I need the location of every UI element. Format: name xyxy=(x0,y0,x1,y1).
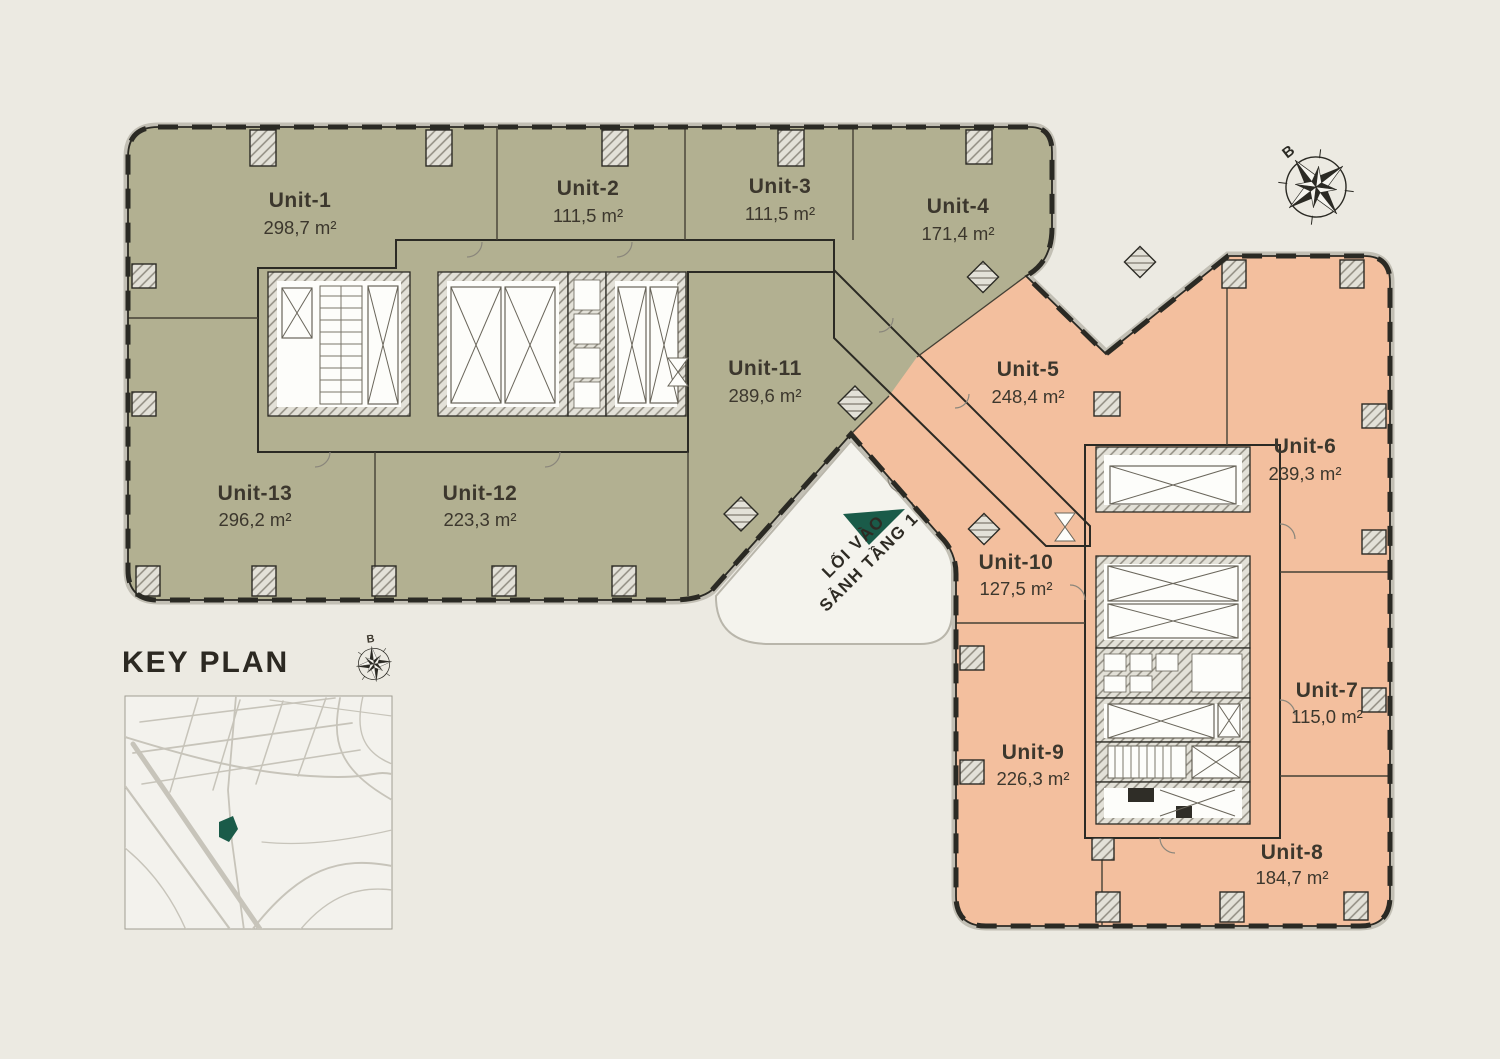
unit-area-unit-13: 296,2 m² xyxy=(218,509,291,530)
unit-label-unit-8: Unit-8 xyxy=(1261,841,1324,864)
unit-area-unit-8: 184,7 m² xyxy=(1255,867,1328,888)
unit-label-unit-5: Unit-5 xyxy=(997,358,1060,381)
unit-area-unit-2: 111,5 m² xyxy=(553,205,623,226)
stair-left xyxy=(320,286,362,404)
unit-label-unit-1: Unit-1 xyxy=(269,189,332,212)
stair-right xyxy=(1108,746,1186,778)
right-core xyxy=(1096,447,1250,824)
unit-label-unit-4: Unit-4 xyxy=(927,195,990,218)
unit-label-unit-10: Unit-10 xyxy=(979,551,1054,574)
unit-area-unit-12: 223,3 m² xyxy=(443,509,516,530)
unit-area-unit-11: 289,6 m² xyxy=(728,385,801,406)
unit-area-unit-4: 171,4 m² xyxy=(921,223,994,244)
unit-label-unit-12: Unit-12 xyxy=(443,482,518,505)
unit-label-unit-11: Unit-11 xyxy=(728,357,802,380)
left-core xyxy=(268,272,686,416)
unit-area-unit-6: 239,3 m² xyxy=(1268,463,1341,484)
unit-label-unit-7: Unit-7 xyxy=(1296,679,1359,702)
unit-area-unit-9: 226,3 m² xyxy=(996,768,1069,789)
unit-area-unit-3: 111,5 m² xyxy=(745,203,815,224)
key-plan-title: KEY PLAN xyxy=(122,646,289,679)
floor-plan-page: Unit-1 298,7 m² Unit-2 111,5 m² Unit-3 1… xyxy=(0,0,1500,1059)
unit-area-unit-5: 248,4 m² xyxy=(991,386,1064,407)
unit-area-unit-7: 115,0 m² xyxy=(1291,706,1363,727)
unit-label-unit-2: Unit-2 xyxy=(557,177,620,200)
unit-label-unit-6: Unit-6 xyxy=(1274,435,1337,458)
key-plan-map xyxy=(125,696,392,929)
unit-label-unit-3: Unit-3 xyxy=(749,175,812,198)
unit-area-unit-1: 298,7 m² xyxy=(263,217,336,238)
floor-plan-canvas: Unit-1 298,7 m² Unit-2 111,5 m² Unit-3 1… xyxy=(0,0,1500,1059)
unit-label-unit-13: Unit-13 xyxy=(218,482,293,505)
unit-area-unit-10: 127,5 m² xyxy=(979,578,1052,599)
unit-label-unit-9: Unit-9 xyxy=(1002,741,1065,764)
